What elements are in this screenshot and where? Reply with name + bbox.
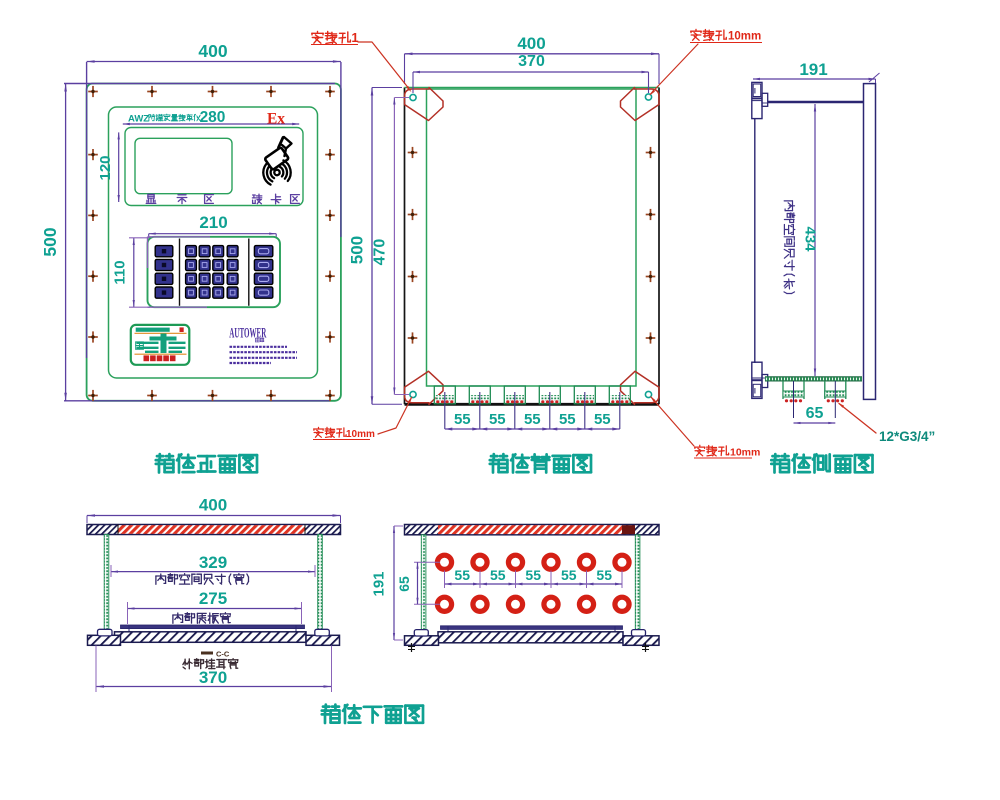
svg-text:120: 120 — [97, 155, 114, 180]
svg-text:AWZ: AWZ — [128, 114, 149, 125]
svg-text:400: 400 — [199, 496, 227, 515]
svg-text:470: 470 — [372, 239, 389, 266]
svg-text:10mm: 10mm — [728, 31, 761, 43]
svg-text:400: 400 — [198, 41, 227, 61]
svg-text:10mm: 10mm — [346, 429, 375, 440]
svg-text:434: 434 — [802, 226, 819, 252]
svg-text:191: 191 — [371, 571, 388, 596]
svg-text:1: 1 — [351, 30, 358, 45]
svg-text:C-C: C-C — [216, 650, 230, 659]
svg-text:275: 275 — [199, 589, 227, 608]
svg-text:191: 191 — [799, 60, 827, 79]
svg-text:500: 500 — [348, 236, 367, 264]
svg-text:AUTOWER: AUTOWER — [229, 325, 266, 341]
svg-text:55: 55 — [559, 411, 576, 428]
svg-text:370: 370 — [518, 53, 545, 70]
svg-text:500: 500 — [40, 227, 60, 256]
svg-text:55: 55 — [489, 411, 506, 428]
svg-text:12*G3/4”: 12*G3/4” — [879, 429, 935, 444]
svg-text:110: 110 — [112, 260, 129, 284]
svg-text:280: 280 — [200, 109, 226, 126]
svg-text:55: 55 — [490, 567, 506, 583]
svg-text:55: 55 — [561, 567, 577, 583]
svg-text:55: 55 — [524, 411, 541, 428]
svg-text:55: 55 — [525, 567, 541, 583]
svg-text:55: 55 — [454, 411, 471, 428]
svg-text:65: 65 — [396, 576, 412, 592]
svg-text:55: 55 — [594, 411, 611, 428]
svg-text:210: 210 — [199, 213, 227, 232]
svg-text:370: 370 — [199, 668, 227, 687]
svg-text:55: 55 — [454, 567, 470, 583]
svg-text:65: 65 — [806, 405, 824, 422]
svg-text:10mm: 10mm — [730, 447, 760, 459]
svg-text:55: 55 — [596, 567, 612, 583]
svg-text:Ex: Ex — [267, 111, 285, 128]
svg-text:329: 329 — [199, 553, 227, 572]
svg-text:400: 400 — [517, 34, 545, 53]
